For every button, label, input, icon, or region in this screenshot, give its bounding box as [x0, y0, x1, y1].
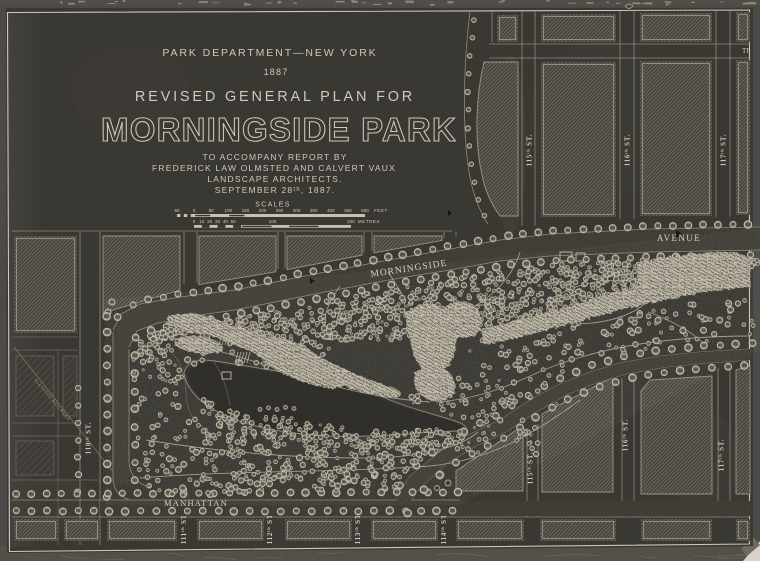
svg-text:50: 50 — [174, 208, 180, 213]
svg-text:300: 300 — [293, 208, 301, 213]
svg-text:200: 200 — [259, 208, 267, 213]
svg-text:100: 100 — [224, 208, 232, 213]
svg-text:10: 10 — [199, 219, 205, 224]
svg-text:30: 30 — [215, 219, 221, 224]
svg-text:REVISED GENERAL PLAN FOR: REVISED GENERAL PLAN FOR — [135, 89, 415, 105]
svg-text:450: 450 — [344, 208, 352, 213]
svg-text:FEET: FEET — [374, 208, 388, 213]
svg-text:1887: 1887 — [264, 67, 289, 77]
svg-text:350: 350 — [310, 208, 318, 213]
svg-text:50: 50 — [209, 208, 215, 213]
svg-text:20: 20 — [207, 219, 213, 224]
svg-text:METRES: METRES — [358, 219, 380, 224]
svg-text:AVENUE: AVENUE — [657, 233, 701, 243]
svg-text:40: 40 — [223, 219, 229, 224]
svg-text:TF: TF — [742, 47, 750, 55]
svg-text:200: 200 — [347, 219, 355, 224]
svg-text:250: 250 — [276, 208, 284, 213]
svg-text:50: 50 — [231, 219, 237, 224]
svg-text:0: 0 — [193, 208, 196, 213]
svg-text:0: 0 — [193, 219, 196, 224]
svg-text:MANHATTAN: MANHATTAN — [164, 498, 228, 508]
svg-text:FREDERICK LAW OLMSTED AND CALV: FREDERICK LAW OLMSTED AND CALVERT VAUX — [152, 163, 396, 173]
svg-text:MORNINGSIDE PARK: MORNINGSIDE PARK — [101, 111, 457, 148]
svg-text:150: 150 — [242, 208, 250, 213]
svg-text:LANDSCAPE ARCHITECTS.: LANDSCAPE ARCHITECTS. — [207, 174, 342, 184]
svg-text:100: 100 — [269, 219, 277, 224]
svg-text:TO ACCOMPANY REPORT BY: TO ACCOMPANY REPORT BY — [202, 152, 347, 162]
svg-text:400: 400 — [327, 208, 335, 213]
svg-text:PARK DEPARTMENT—NEW YORK: PARK DEPARTMENT—NEW YORK — [162, 47, 377, 59]
svg-text:500: 500 — [361, 208, 369, 213]
svg-text:SEPTEMBER 28ᵗʰ, 1887.: SEPTEMBER 28ᵗʰ, 1887. — [215, 185, 336, 195]
